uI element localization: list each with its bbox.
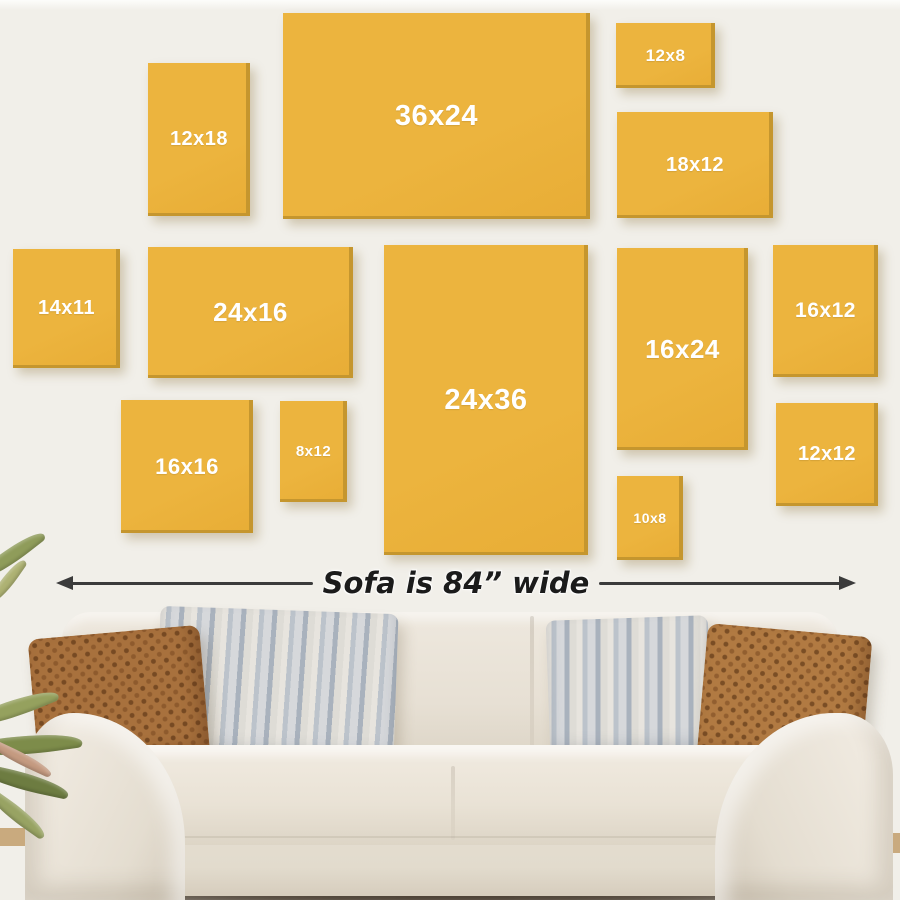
wall-frame-36x24: 36x24 xyxy=(283,13,590,219)
sofa-width-label: Sofa is 84” wide xyxy=(323,566,590,600)
frame-size-label: 8x12 xyxy=(296,443,331,460)
arrow-head-right-icon xyxy=(839,576,856,590)
wall-frame-10x8: 10x8 xyxy=(617,476,683,560)
frame-size-label: 12x12 xyxy=(798,443,856,466)
wall-frame-12x12: 12x12 xyxy=(776,403,878,506)
wall-frame-24x36: 24x36 xyxy=(384,245,588,555)
pillow-striped-right xyxy=(546,615,713,757)
wall-frame-16x24: 16x24 xyxy=(617,248,748,450)
arrow-line-left xyxy=(71,582,313,585)
wall-frame-8x12: 8x12 xyxy=(280,401,347,502)
frame-size-label: 12x18 xyxy=(170,128,228,151)
frame-size-label: 10x8 xyxy=(633,510,666,526)
wall-frame-16x12: 16x12 xyxy=(773,245,878,377)
arrow-line-right xyxy=(599,582,841,585)
wall-frame-12x8: 12x8 xyxy=(616,23,715,88)
frame-size-label: 12x8 xyxy=(646,46,686,66)
wall-frame-16x16: 16x16 xyxy=(121,400,253,533)
frame-size-label: 24x16 xyxy=(213,297,288,328)
wall-frame-12x18: 12x18 xyxy=(148,63,250,216)
wall-frame-14x11: 14x11 xyxy=(13,249,120,368)
frame-size-label: 16x24 xyxy=(645,334,720,365)
sofa-width-arrow: Sofa is 84” wide xyxy=(56,562,856,604)
frame-size-label: 16x16 xyxy=(155,454,219,480)
frame-size-label: 16x12 xyxy=(795,299,856,323)
sofa-seat-cushion-seam xyxy=(451,766,455,840)
scene: 12x1836x2412x818x1214x1124x1624x3616x241… xyxy=(0,0,900,900)
frame-size-label: 18x12 xyxy=(666,154,724,177)
wall-frame-24x16: 24x16 xyxy=(148,247,353,378)
frame-size-label: 14x11 xyxy=(38,297,95,320)
frame-size-label: 24x36 xyxy=(444,384,527,417)
wall-frame-18x12: 18x12 xyxy=(617,112,773,218)
sofa-base-seam xyxy=(120,836,780,838)
frame-size-label: 36x24 xyxy=(395,100,478,133)
